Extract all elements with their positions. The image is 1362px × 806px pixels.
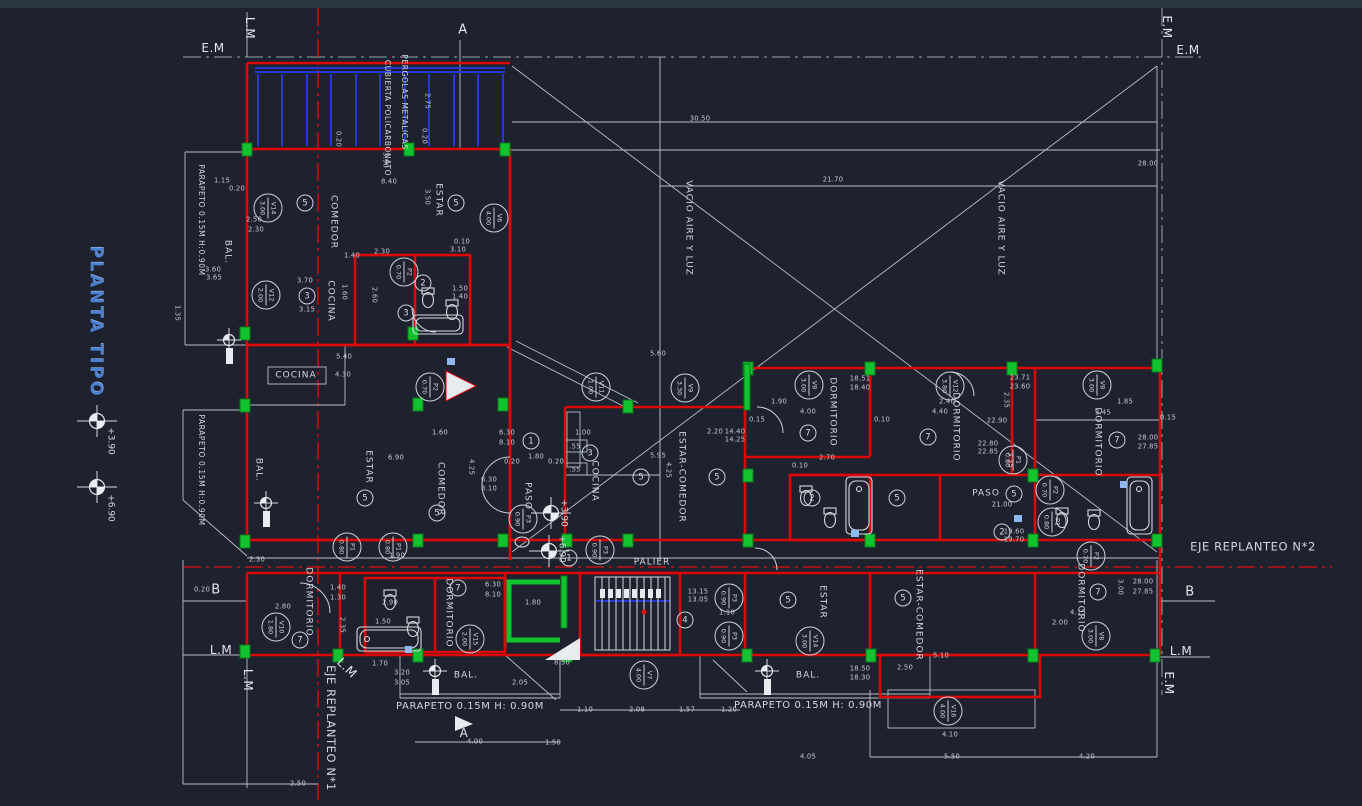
symbol-layer <box>77 328 779 695</box>
sill-squares <box>405 358 1127 653</box>
cad-viewport[interactable]: PLANTA TIPO COMEDORESTARBAL.COCINACOCINA… <box>0 0 1362 806</box>
cad-canvas <box>0 0 1362 806</box>
columns <box>240 143 1162 662</box>
level-marker-icon <box>77 405 117 437</box>
construction-lines <box>183 12 1215 788</box>
walls <box>247 63 1160 697</box>
section-arrow <box>455 716 473 731</box>
drain-icon <box>254 491 278 527</box>
drain-icon <box>423 659 447 695</box>
boundary-centerlines <box>183 8 1205 695</box>
level-marker-icon <box>77 471 117 503</box>
section-triangle <box>446 371 476 401</box>
stairs <box>595 577 670 650</box>
drain-icon <box>755 659 779 695</box>
stair-axis-dot <box>642 610 647 615</box>
stair-core-wall <box>509 582 560 640</box>
drain-icon <box>217 328 241 364</box>
